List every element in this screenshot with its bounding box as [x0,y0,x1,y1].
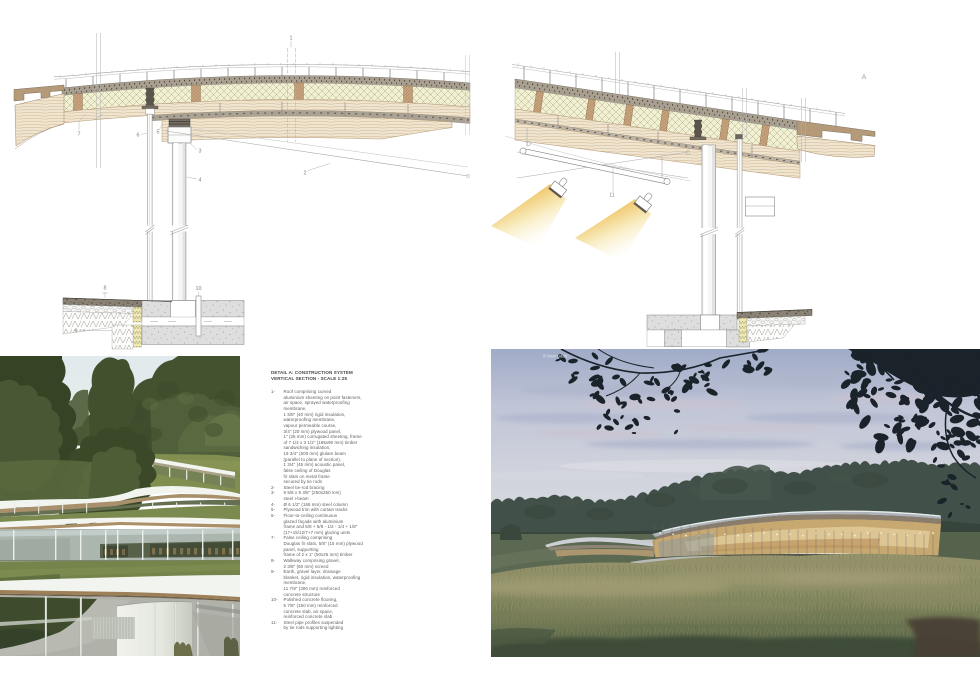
svg-text:© Iwan Baan: © Iwan Baan [213,351,238,356]
svg-text:© Iwan Baan: © Iwan Baan [543,354,568,359]
svg-text:9: 9 [75,329,78,335]
svg-text:11: 11 [609,193,614,199]
svg-text:2: 2 [304,171,307,177]
svg-text:6: 6 [137,133,140,139]
svg-text:A: A [862,74,867,81]
svg-text:4: 4 [199,178,202,184]
svg-text:1: 1 [290,36,293,42]
svg-text:10: 10 [196,286,202,292]
svg-text:3: 3 [199,149,202,155]
svg-text:7: 7 [78,132,81,138]
svg-text:8: 8 [104,286,107,292]
svg-text:5: 5 [157,130,160,136]
